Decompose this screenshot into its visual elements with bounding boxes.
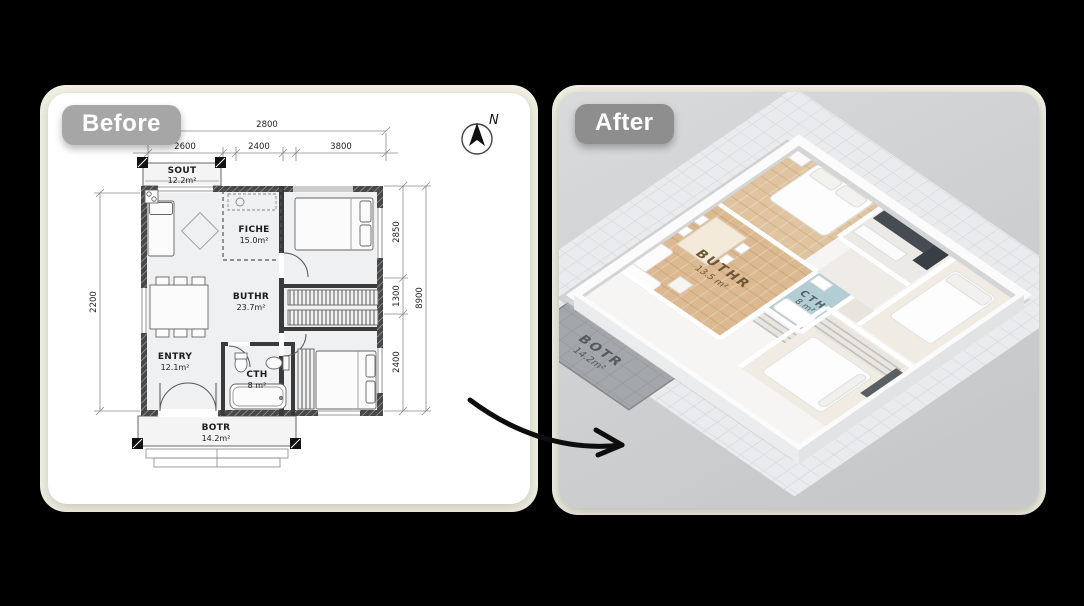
dim-top-seg2: 2400 xyxy=(248,142,270,152)
compass-needle xyxy=(469,123,485,146)
label-botr-name: BOTR xyxy=(202,423,231,433)
after-badge: After xyxy=(575,104,674,144)
before-badge: Before xyxy=(62,105,181,145)
floor-plan-3d: BUTHR 13.5 m² CTH 8 m² BOTR 14.2m² xyxy=(559,92,1039,508)
north-compass: N xyxy=(462,113,499,154)
label-fiche-name: FICHE xyxy=(238,225,269,235)
label-sout-name: SOUT xyxy=(168,166,197,176)
floor-plan-2d: 2800 2600 2400 3800 2200 2850 1300 2400 … xyxy=(48,93,530,504)
dim-right-seg3: 2400 xyxy=(392,351,402,373)
label-entry-name: ENTRY xyxy=(158,352,192,362)
label-buthr-name: BUTHR xyxy=(233,292,269,302)
dim-left-height: 2200 xyxy=(89,291,99,313)
after-panel-frame: BUTHR 13.5 m² CTH 8 m² BOTR 14.2m² After xyxy=(552,85,1046,515)
label-botr-area: 14.2m² xyxy=(202,434,231,443)
label-cth-area: 8 m² xyxy=(248,381,267,390)
label-sout-area: 12.2m² xyxy=(168,176,197,185)
dim-top-seg3: 3800 xyxy=(330,142,352,152)
label-fiche-area: 15.0m² xyxy=(240,236,269,245)
dim-top-seg1: 2600 xyxy=(174,142,196,152)
label-buthr-area: 23.7m² xyxy=(237,303,266,312)
before-panel: Before xyxy=(48,93,530,504)
dim-right-seg1: 2850 xyxy=(392,221,402,243)
dim-right-total: 8900 xyxy=(415,287,425,309)
label-entry-area: 12.1m² xyxy=(161,363,190,372)
dim-right-seg2: 1300 xyxy=(392,285,402,307)
label-cth-name: CTH xyxy=(246,370,267,380)
after-panel: BUTHR 13.5 m² CTH 8 m² BOTR 14.2m² After xyxy=(559,92,1039,508)
dim-top-total: 2800 xyxy=(256,120,278,130)
before-panel-frame: Before xyxy=(40,85,538,512)
compass-n-label: N xyxy=(489,113,499,128)
